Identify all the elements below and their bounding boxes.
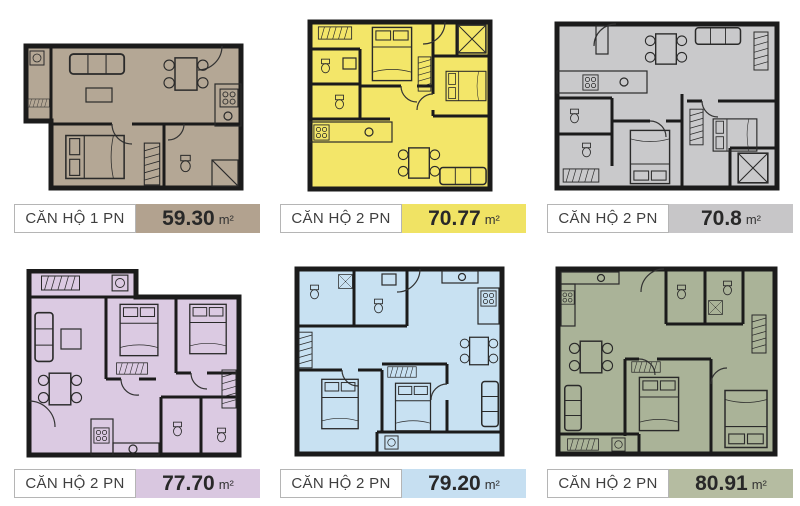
- unit-area-unit: m²: [485, 212, 500, 227]
- unit-label-row: CĂN HỘ 2 PN 77.70 m²: [14, 469, 266, 498]
- plan-silhouette: [297, 269, 502, 454]
- unit-card-4[interactable]: CĂN HỘ 2 PN 77.70 m²: [0, 261, 266, 498]
- floor-plan-unit-6: [553, 264, 780, 461]
- unit-area-unit: m²: [746, 212, 761, 227]
- unit-area-badge: 59.30 m²: [136, 204, 260, 233]
- floor-plan-wrap: [266, 4, 533, 196]
- unit-label-row: CĂN HỘ 2 PN 79.20 m²: [280, 469, 533, 498]
- unit-card-1[interactable]: CĂN HỘ 1 PN 59.30 m²: [0, 4, 266, 233]
- floor-plan-unit-4: [21, 269, 246, 461]
- unit-name: CĂN HỘ 2 PN: [547, 204, 669, 233]
- unit-area-value: 80.91: [695, 472, 748, 496]
- floor-plan-wrap: [533, 4, 800, 196]
- unit-area-value: 70.8: [701, 207, 742, 231]
- unit-label-row: CĂN HỘ 2 PN 70.77 m²: [280, 204, 533, 233]
- unit-name: CĂN HỘ 2 PN: [547, 469, 669, 498]
- unit-card-6[interactable]: CĂN HỘ 2 PN 80.91 m²: [533, 261, 800, 498]
- unit-name: CĂN HỘ 2 PN: [280, 469, 402, 498]
- floor-plan-wrap: [0, 4, 266, 196]
- unit-label-row: CĂN HỘ 2 PN 80.91 m²: [547, 469, 800, 498]
- floor-plan-unit-2: [305, 14, 495, 196]
- unit-area-badge: 70.77 m²: [402, 204, 526, 233]
- unit-area-unit: m²: [219, 212, 234, 227]
- floor-plan-unit-5: [292, 264, 507, 461]
- unit-name: CĂN HỘ 2 PN: [280, 204, 402, 233]
- plans-row-1: CĂN HỘ 1 PN 59.30 m²: [0, 0, 800, 233]
- unit-card-3[interactable]: CĂN HỘ 2 PN 70.8 m²: [533, 4, 800, 233]
- unit-label-row: CĂN HỘ 1 PN 59.30 m²: [14, 204, 266, 233]
- unit-area-badge: 79.20 m²: [402, 469, 526, 498]
- unit-area-unit: m²: [485, 477, 500, 492]
- floor-plan-wrap: [266, 261, 533, 461]
- unit-area-unit: m²: [219, 477, 234, 492]
- unit-area-badge: 80.91 m²: [669, 469, 793, 498]
- unit-area-unit: m²: [752, 477, 767, 492]
- unit-area-badge: 70.8 m²: [669, 204, 793, 233]
- unit-area-badge: 77.70 m²: [136, 469, 260, 498]
- plan-silhouette: [557, 24, 777, 188]
- floor-plan-wrap: [533, 261, 800, 461]
- unit-name: CĂN HỘ 1 PN: [14, 204, 136, 233]
- floor-plan-unit-3: [552, 16, 782, 196]
- unit-area-value: 70.77: [428, 207, 481, 231]
- unit-card-5[interactable]: CĂN HỘ 2 PN 79.20 m²: [266, 261, 533, 498]
- floor-plan-wrap: [0, 261, 266, 461]
- plans-row-2: CĂN HỘ 2 PN 77.70 m²: [0, 257, 800, 498]
- unit-name: CĂN HỘ 2 PN: [14, 469, 136, 498]
- unit-label-row: CĂN HỘ 2 PN 70.8 m²: [547, 204, 800, 233]
- unit-area-value: 77.70: [162, 472, 215, 496]
- unit-card-2[interactable]: CĂN HỘ 2 PN 70.77 m²: [266, 4, 533, 233]
- unit-area-value: 59.30: [162, 207, 215, 231]
- unit-area-value: 79.20: [428, 472, 481, 496]
- floor-plan-unit-1: [16, 36, 251, 196]
